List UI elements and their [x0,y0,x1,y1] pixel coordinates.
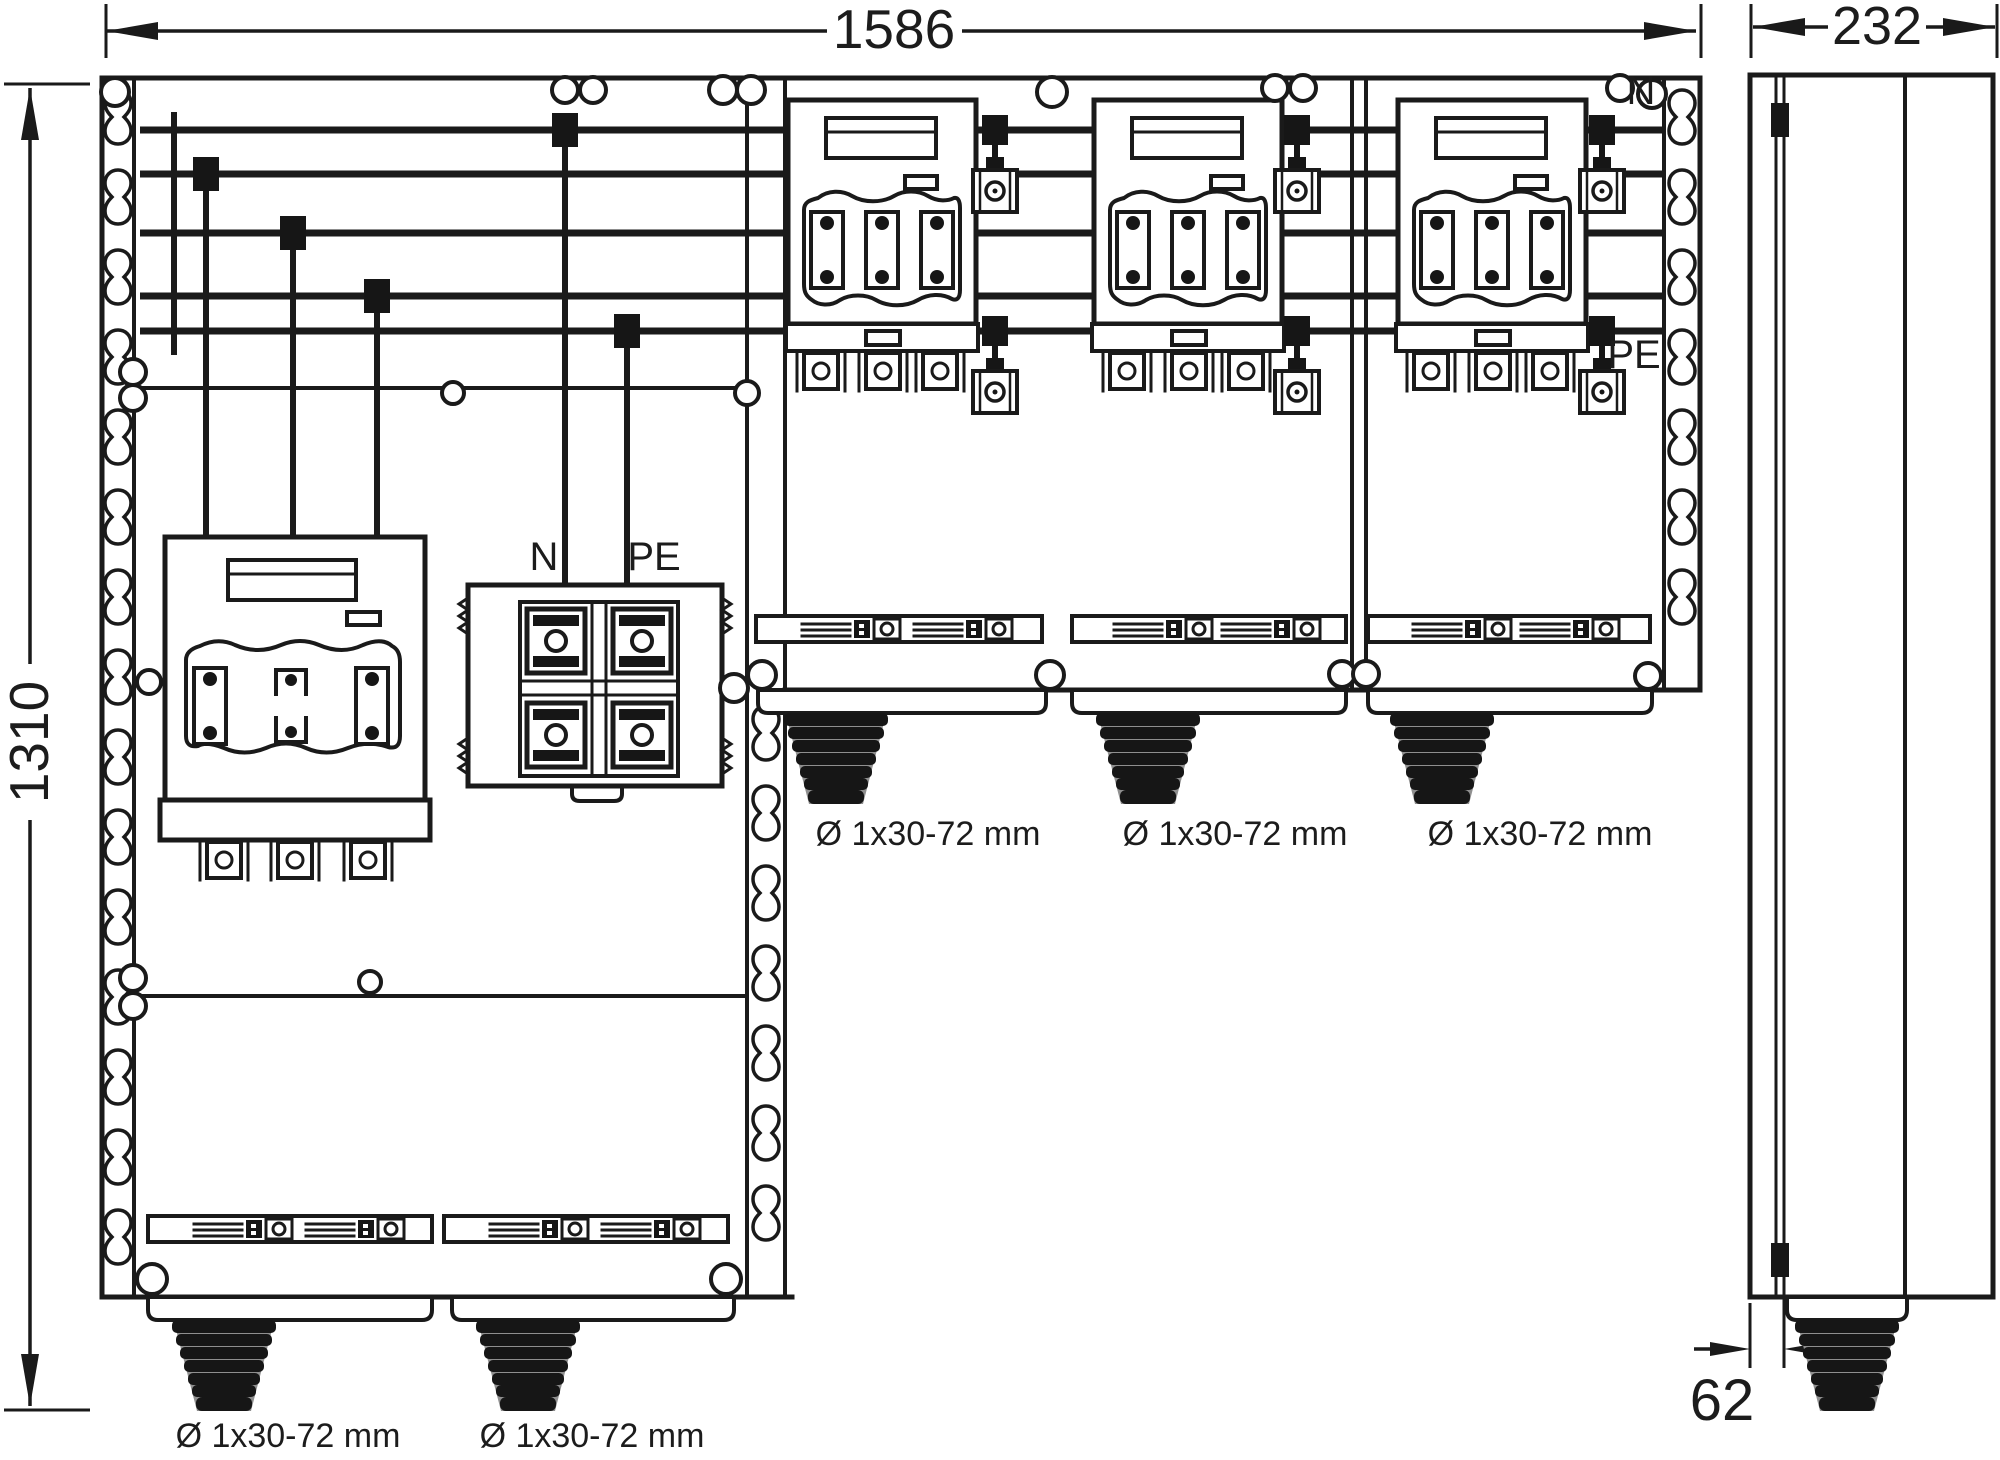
screw-icon [711,1264,741,1294]
side-gland-flange [1787,1297,1907,1320]
din-rail-strip [148,1216,432,1242]
screw-icon [737,76,765,104]
screw-icon [120,965,146,991]
screw-icon [1036,661,1064,689]
screw-icon [1635,663,1661,689]
screw-icon [101,78,129,106]
dim-width-label: 1586 [833,0,955,60]
npe-terminal-block [459,585,731,801]
screw-icon [552,77,578,103]
drawing-page: 1586 232 1310 62 [0,0,2000,1460]
terminal-n-label: N [530,535,559,579]
din-rail-strip [444,1216,728,1242]
screw-icon [120,359,146,385]
gland-label-5: Ø 1x30-72 mm [1428,815,1653,853]
screw-icon [1353,661,1379,687]
fuse-switch-outgoing-3 [1396,100,1588,391]
busbar-n-label: N [1627,69,1656,113]
screw-icon [120,385,146,411]
screw-icon [137,670,161,694]
busbar-section-top [1771,103,1789,137]
screw-icon [359,971,381,993]
din-rail-strip [756,616,1042,642]
busbar-section-bottom [1771,1243,1789,1277]
screw-icon [748,661,776,689]
screw-icon [580,77,606,103]
screw-icon [120,993,146,1019]
gland-label-4: Ø 1x30-72 mm [1123,815,1348,853]
dim-height-label: 1310 [0,681,60,803]
screw-icon [720,674,748,702]
screw-icon [442,382,464,404]
screw-icon [1262,75,1288,101]
screw-icon [1037,77,1067,107]
screw-icon [137,1264,167,1294]
fuse-switch-outgoing-1 [786,100,978,391]
gland-label-2: Ø 1x30-72 mm [480,1417,705,1455]
screw-icon [709,76,737,104]
screw-icon [735,381,759,405]
gland-label-1: Ø 1x30-72 mm [176,1417,401,1455]
fuse-switch-incoming [160,537,430,880]
gland-label-3: Ø 1x30-72 mm [816,815,1041,853]
din-rail-strip [1368,616,1650,642]
screw-icon [1290,75,1316,101]
fuse-switch-outgoing-2 [1092,100,1284,391]
dim-gland-offset-label: 62 [1690,1368,1755,1433]
technical-drawing-canvas: 1586 232 1310 62 [0,0,2000,1460]
terminal-pe-label: PE [627,535,680,579]
din-rail-strip [1072,616,1346,642]
dim-depth-label: 232 [1832,0,1922,56]
busbar-pe-label: PE [1607,333,1660,377]
